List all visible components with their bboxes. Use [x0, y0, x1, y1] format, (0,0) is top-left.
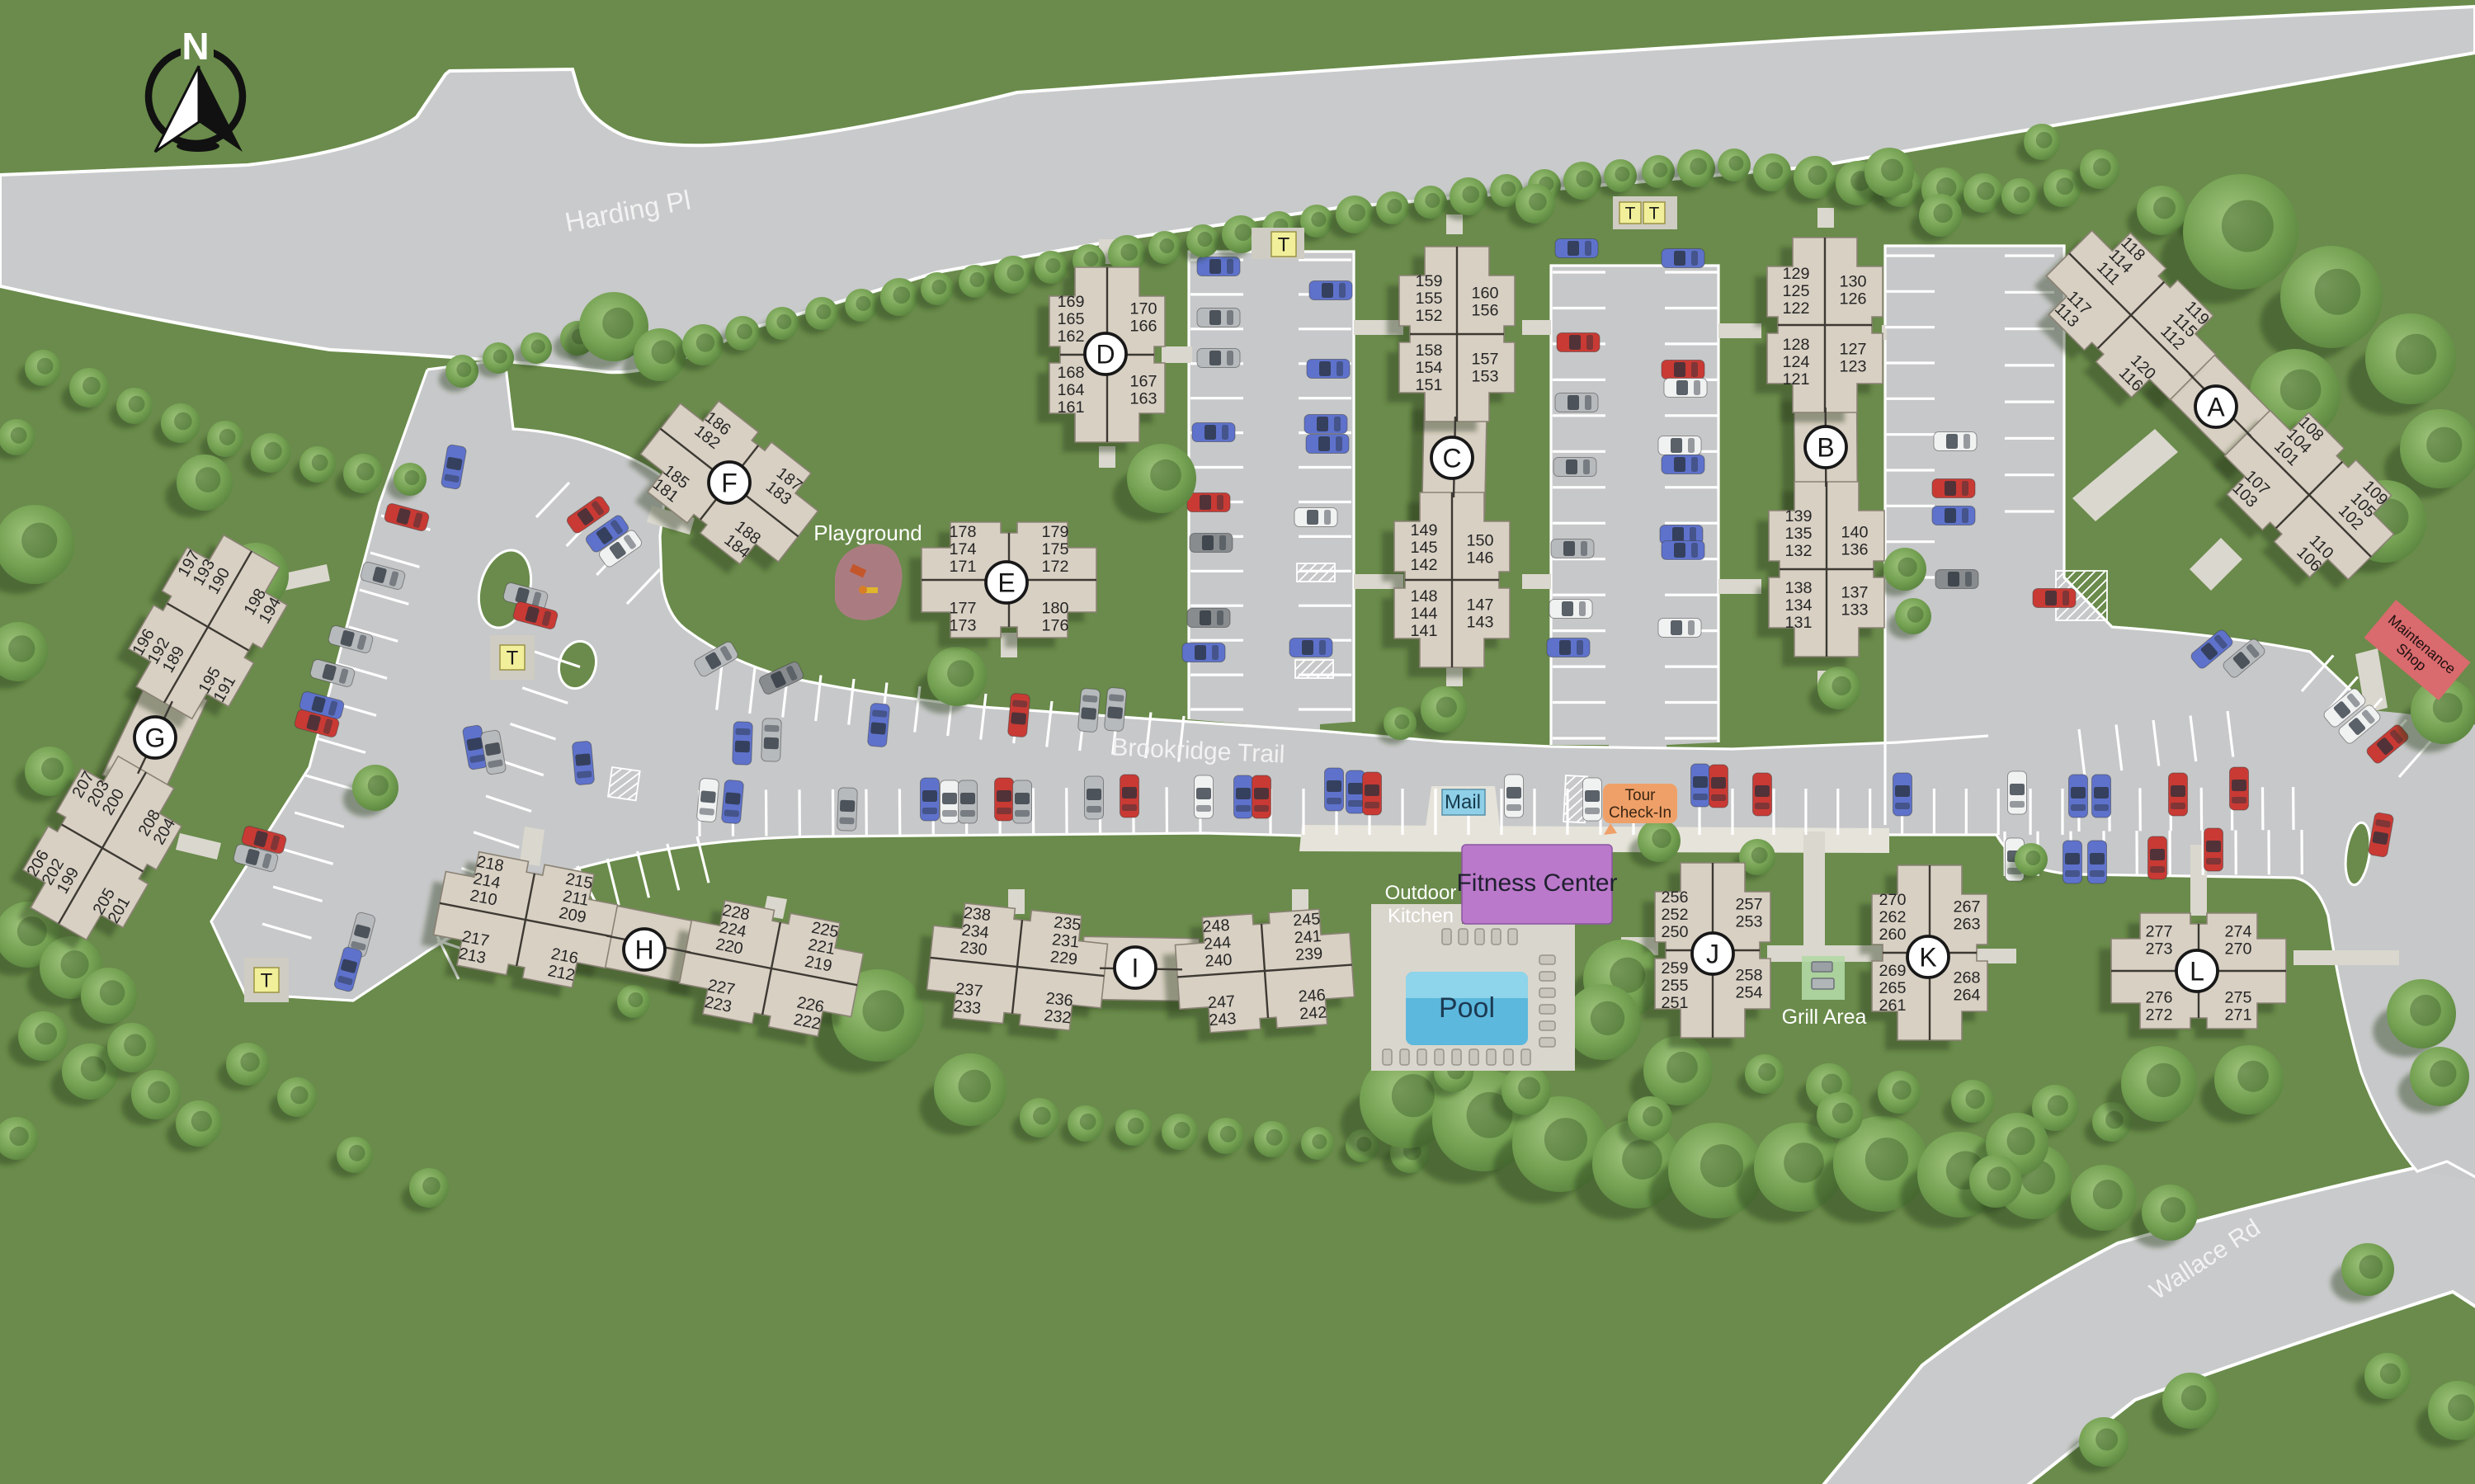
svg-text:T: T — [261, 969, 273, 992]
svg-text:K: K — [1919, 943, 1936, 973]
svg-text:235231229: 235231229 — [1049, 913, 1082, 968]
svg-text:L: L — [2190, 957, 2204, 987]
svg-text:247243: 247243 — [1207, 992, 1237, 1029]
svg-text:270262260: 270262260 — [1879, 891, 1906, 944]
svg-text:T: T — [1649, 204, 1660, 223]
svg-text:157153: 157153 — [1471, 350, 1498, 385]
svg-text:160156: 160156 — [1471, 284, 1498, 319]
svg-text:J: J — [1706, 940, 1719, 969]
svg-text:Outdoor: Outdoor — [1385, 882, 1457, 904]
svg-text:277273: 277273 — [2145, 922, 2172, 958]
svg-text:237233: 237233 — [953, 980, 983, 1018]
svg-text:D: D — [1096, 340, 1115, 370]
svg-text:E: E — [997, 568, 1015, 598]
svg-text:I: I — [1132, 954, 1139, 983]
svg-text:168164161: 168164161 — [1057, 364, 1084, 417]
svg-text:Grill Area: Grill Area — [1782, 1006, 1867, 1029]
svg-text:T: T — [507, 647, 519, 669]
svg-text:275271: 275271 — [2224, 988, 2251, 1024]
svg-text:258254: 258254 — [1735, 966, 1762, 1001]
svg-text:259255251: 259255251 — [1661, 959, 1688, 1012]
svg-text:C: C — [1442, 444, 1461, 473]
svg-text:F: F — [721, 469, 738, 498]
svg-text:257253: 257253 — [1735, 895, 1762, 930]
svg-text:G: G — [145, 723, 166, 753]
svg-text:H: H — [634, 935, 653, 965]
svg-text:167163: 167163 — [1129, 372, 1157, 408]
svg-text:179175172: 179175172 — [1041, 523, 1068, 576]
svg-text:158154151: 158154151 — [1415, 342, 1442, 394]
svg-text:159155152: 159155152 — [1415, 272, 1442, 325]
svg-text:256252250: 256252250 — [1661, 888, 1688, 941]
svg-text:128124121: 128124121 — [1782, 336, 1809, 389]
svg-text:Playground: Playground — [813, 521, 922, 545]
svg-text:Mail: Mail — [1445, 791, 1481, 813]
svg-text:T: T — [1625, 204, 1636, 223]
svg-text:Fitness Center: Fitness Center — [1456, 869, 1617, 897]
svg-text:150146: 150146 — [1466, 531, 1493, 567]
svg-text:B: B — [1817, 433, 1834, 463]
svg-text:Check-In: Check-In — [1609, 804, 1671, 822]
svg-text:147143: 147143 — [1466, 596, 1493, 631]
svg-text:137133: 137133 — [1841, 583, 1868, 619]
svg-text:Kitchen: Kitchen — [1388, 905, 1454, 927]
svg-text:236232: 236232 — [1043, 989, 1073, 1027]
svg-text:A: A — [2207, 393, 2225, 422]
svg-text:169165162: 169165162 — [1057, 293, 1084, 346]
svg-text:180176: 180176 — [1041, 599, 1068, 634]
svg-text:129125122: 129125122 — [1782, 265, 1809, 318]
svg-text:238234230: 238234230 — [959, 904, 992, 959]
svg-text:138134131: 138134131 — [1784, 579, 1812, 632]
svg-text:130126: 130126 — [1839, 272, 1866, 308]
svg-text:140136: 140136 — [1841, 523, 1868, 558]
svg-text:Tour: Tour — [1625, 787, 1657, 804]
svg-text:245241239: 245241239 — [1293, 910, 1323, 964]
svg-text:139135132: 139135132 — [1784, 507, 1812, 560]
svg-text:T: T — [1278, 233, 1290, 256]
svg-text:149145142: 149145142 — [1410, 521, 1437, 574]
svg-text:276272: 276272 — [2145, 988, 2172, 1024]
svg-text:127123: 127123 — [1839, 340, 1866, 375]
svg-text:Pool: Pool — [1439, 992, 1495, 1024]
svg-text:269265261: 269265261 — [1879, 962, 1906, 1015]
svg-text:148144141: 148144141 — [1410, 587, 1437, 640]
svg-text:170166: 170166 — [1129, 299, 1157, 335]
svg-text:177173: 177173 — [949, 599, 976, 634]
svg-text:246242: 246242 — [1298, 986, 1327, 1023]
svg-text:248244240: 248244240 — [1202, 916, 1233, 971]
svg-text:N: N — [181, 25, 209, 68]
svg-text:178174171: 178174171 — [949, 523, 976, 576]
svg-text:274270: 274270 — [2224, 922, 2251, 958]
svg-text:268264: 268264 — [1953, 968, 1980, 1004]
svg-text:267263: 267263 — [1953, 897, 1980, 933]
